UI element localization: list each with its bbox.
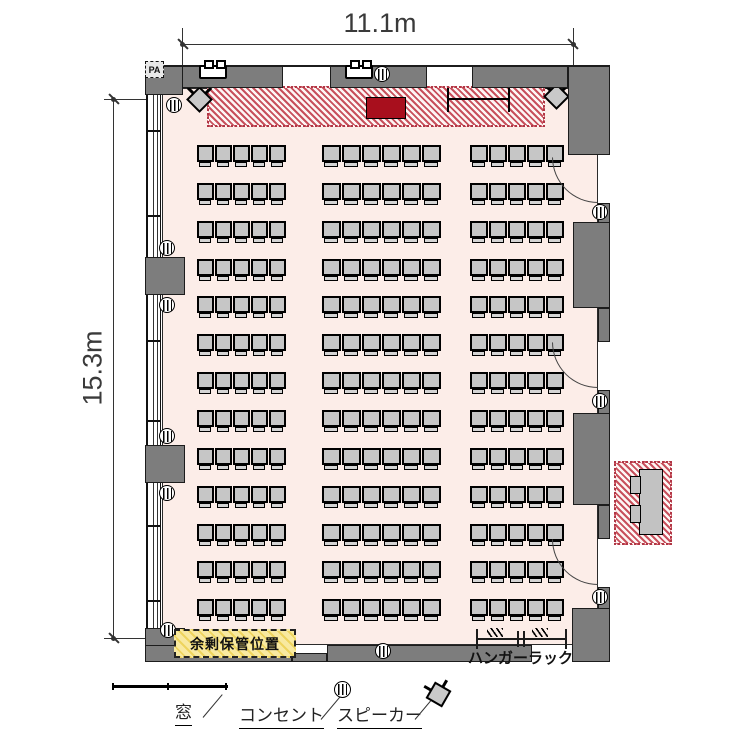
- chair: [422, 296, 441, 313]
- chair: [546, 221, 564, 238]
- chair: [470, 259, 488, 276]
- chair: [527, 259, 545, 276]
- chair: [322, 259, 341, 276]
- chair: [342, 561, 361, 578]
- chair: [215, 486, 232, 503]
- chair: [197, 259, 214, 276]
- chair-row-block: [197, 410, 286, 427]
- chair-row-block: [470, 410, 564, 427]
- chair: [342, 372, 361, 389]
- chair-row-block: [470, 259, 564, 276]
- chair: [342, 524, 361, 541]
- chair: [233, 448, 250, 465]
- chair-row-block: [197, 183, 286, 200]
- chair: [342, 259, 361, 276]
- chair-row-block: [322, 599, 441, 616]
- chair: [508, 410, 526, 427]
- chair-row-block: [197, 145, 286, 162]
- chair: [489, 334, 507, 351]
- wall-segment-bottom-thin: [292, 653, 327, 662]
- chair: [233, 334, 250, 351]
- chair: [422, 599, 441, 616]
- chair: [251, 486, 268, 503]
- chair: [470, 486, 488, 503]
- chair: [215, 561, 232, 578]
- chair: [215, 296, 232, 313]
- chair: [402, 259, 421, 276]
- chair-row-block: [470, 145, 564, 162]
- chair: [508, 221, 526, 238]
- chair: [197, 448, 214, 465]
- chair: [508, 145, 526, 162]
- chair: [269, 524, 286, 541]
- chair: [382, 296, 401, 313]
- chair: [322, 410, 341, 427]
- wall-segment-right: [598, 308, 610, 342]
- chair: [322, 296, 341, 313]
- chair: [342, 221, 361, 238]
- chair: [362, 410, 381, 427]
- chair: [470, 524, 488, 541]
- chair: [489, 259, 507, 276]
- hanger-rack-label: ハンガーラック: [468, 647, 580, 668]
- chair-row-block: [322, 486, 441, 503]
- chair: [402, 599, 421, 616]
- chair: [233, 486, 250, 503]
- chair: [215, 448, 232, 465]
- chair: [251, 145, 268, 162]
- outlet-icon: [159, 297, 175, 313]
- chair: [269, 561, 286, 578]
- chair-row-block: [197, 561, 286, 578]
- outlet-icon: [159, 485, 175, 501]
- wall-segment-right: [598, 505, 610, 539]
- chair: [508, 486, 526, 503]
- chair: [197, 486, 214, 503]
- av-equipment-icon: [345, 65, 373, 79]
- outlet-icon: [159, 428, 175, 444]
- chair: [508, 334, 526, 351]
- chair: [382, 448, 401, 465]
- chair: [489, 183, 507, 200]
- chair: [322, 486, 341, 503]
- chair: [422, 448, 441, 465]
- chair: [527, 410, 545, 427]
- chair: [527, 296, 545, 313]
- chair: [422, 524, 441, 541]
- hanger-rack-end: [476, 629, 478, 649]
- chair: [470, 372, 488, 389]
- external-desk: [639, 469, 663, 535]
- chair: [382, 183, 401, 200]
- chair: [422, 183, 441, 200]
- chair: [402, 221, 421, 238]
- hanger-rack-end: [565, 629, 567, 649]
- chair: [546, 599, 564, 616]
- chair: [470, 296, 488, 313]
- chair: [342, 145, 361, 162]
- chair: [197, 296, 214, 313]
- chair: [527, 183, 545, 200]
- chair: [233, 296, 250, 313]
- chair: [362, 145, 381, 162]
- chair: [402, 183, 421, 200]
- chair: [322, 221, 341, 238]
- seating-area: [0, 0, 750, 750]
- chair: [527, 372, 545, 389]
- chair: [546, 448, 564, 465]
- chair: [470, 448, 488, 465]
- chair: [508, 183, 526, 200]
- wall-pillar-left: [145, 445, 185, 483]
- window-mullion: [146, 215, 161, 217]
- outlet-icon: [374, 66, 390, 82]
- chair: [382, 334, 401, 351]
- chair-row-block: [197, 448, 286, 465]
- chair: [322, 524, 341, 541]
- corner-pillar-top-right: [568, 66, 610, 155]
- chair: [342, 183, 361, 200]
- legend-window-symbol: [113, 685, 228, 688]
- chair: [215, 599, 232, 616]
- chair: [269, 334, 286, 351]
- chair: [251, 524, 268, 541]
- chair-row-block: [322, 372, 441, 389]
- legend-speaker-label: スピーカー: [337, 701, 422, 729]
- chair: [197, 372, 214, 389]
- hanger-rack-hangers: [532, 628, 548, 637]
- legend-window-tick: [112, 683, 114, 690]
- chair: [251, 372, 268, 389]
- chair: [362, 599, 381, 616]
- chair: [402, 334, 421, 351]
- chair: [342, 410, 361, 427]
- chair: [422, 410, 441, 427]
- chair: [251, 221, 268, 238]
- chair: [233, 561, 250, 578]
- chair: [422, 145, 441, 162]
- chair: [402, 448, 421, 465]
- chair-row-block: [470, 561, 564, 578]
- chair: [233, 221, 250, 238]
- chair: [197, 561, 214, 578]
- chair: [508, 448, 526, 465]
- chair: [489, 410, 507, 427]
- chair: [215, 221, 232, 238]
- chair: [251, 561, 268, 578]
- chair: [251, 334, 268, 351]
- window-pane: [153, 95, 158, 629]
- chair: [342, 296, 361, 313]
- chair: [470, 334, 488, 351]
- chair: [362, 372, 381, 389]
- chair: [269, 221, 286, 238]
- chair: [322, 599, 341, 616]
- window-mullion: [146, 600, 161, 602]
- chair: [489, 221, 507, 238]
- chair: [546, 296, 564, 313]
- chair: [382, 410, 401, 427]
- chair-row-block: [470, 183, 564, 200]
- chair: [215, 334, 232, 351]
- chair: [269, 296, 286, 313]
- chair: [197, 334, 214, 351]
- chair: [382, 524, 401, 541]
- chair: [362, 183, 381, 200]
- chair: [382, 259, 401, 276]
- wall-segment-top: [472, 66, 568, 88]
- chair: [402, 410, 421, 427]
- chair: [489, 145, 507, 162]
- chair-row-block: [470, 486, 564, 503]
- chair-row-block: [470, 334, 564, 351]
- chair: [470, 410, 488, 427]
- chair: [527, 334, 545, 351]
- chair: [489, 486, 507, 503]
- chair: [527, 486, 545, 503]
- chair: [508, 296, 526, 313]
- chair: [215, 410, 232, 427]
- chair: [342, 599, 361, 616]
- chair: [197, 410, 214, 427]
- outlet-icon: [592, 204, 608, 220]
- chair: [362, 561, 381, 578]
- chair: [489, 599, 507, 616]
- chair: [402, 145, 421, 162]
- chair: [215, 183, 232, 200]
- pa-box: PA: [145, 61, 164, 78]
- chair: [322, 145, 341, 162]
- chair-row-block: [322, 259, 441, 276]
- outlet-icon: [375, 643, 391, 659]
- chair-row-block: [470, 599, 564, 616]
- chair: [422, 372, 441, 389]
- window-wall: [146, 95, 161, 629]
- chair: [269, 372, 286, 389]
- chair: [342, 448, 361, 465]
- chair: [489, 372, 507, 389]
- chair: [269, 145, 286, 162]
- chair: [197, 221, 214, 238]
- floor-plan: 11.1m 15.3m PA: [0, 0, 750, 750]
- chair-row-block: [322, 448, 441, 465]
- chair: [251, 183, 268, 200]
- chair: [197, 524, 214, 541]
- chair: [322, 334, 341, 351]
- chair: [489, 296, 507, 313]
- chair: [342, 334, 361, 351]
- chair: [342, 486, 361, 503]
- chair: [362, 486, 381, 503]
- chair: [402, 524, 421, 541]
- chair: [422, 561, 441, 578]
- chair: [489, 561, 507, 578]
- chair-row-block: [197, 599, 286, 616]
- chair: [470, 183, 488, 200]
- chair: [382, 221, 401, 238]
- chair: [197, 145, 214, 162]
- chair: [527, 599, 545, 616]
- chair: [269, 259, 286, 276]
- chair: [527, 221, 545, 238]
- chair: [546, 372, 564, 389]
- chair: [362, 334, 381, 351]
- chair: [489, 448, 507, 465]
- chair: [470, 561, 488, 578]
- chair-row-block: [197, 334, 286, 351]
- chair-row-block: [197, 221, 286, 238]
- surplus-storage-label: 余剰保管位置: [174, 629, 296, 658]
- chair-row-block: [197, 296, 286, 313]
- chair: [233, 410, 250, 427]
- chair: [322, 448, 341, 465]
- chair-row-block: [470, 524, 564, 541]
- chair: [215, 145, 232, 162]
- av-equipment-icon: [199, 65, 227, 79]
- outlet-icon: [334, 681, 351, 698]
- chair-row-block: [322, 410, 441, 427]
- chair: [546, 486, 564, 503]
- wall-pillar-left: [145, 257, 185, 295]
- hanger-rack-post: [517, 631, 519, 647]
- chair: [233, 259, 250, 276]
- chair: [233, 599, 250, 616]
- chair: [362, 259, 381, 276]
- chair: [322, 183, 341, 200]
- chair: [362, 296, 381, 313]
- chair: [508, 524, 526, 541]
- chair: [269, 448, 286, 465]
- legend-outlet-label: コンセント: [239, 701, 324, 729]
- chair: [233, 145, 250, 162]
- window-mullion: [146, 340, 161, 342]
- hanger-rack-post: [523, 631, 525, 647]
- chair-row-block: [322, 221, 441, 238]
- chair: [508, 372, 526, 389]
- chair: [269, 486, 286, 503]
- chair: [402, 561, 421, 578]
- chair-row-block: [197, 372, 286, 389]
- legend-window-label: 窓: [175, 698, 192, 726]
- chair: [233, 372, 250, 389]
- chair-row-block: [470, 221, 564, 238]
- chair-row-block: [322, 183, 441, 200]
- chair: [382, 145, 401, 162]
- chair: [527, 561, 545, 578]
- chair: [269, 410, 286, 427]
- chair: [251, 448, 268, 465]
- chair-row-block: [322, 561, 441, 578]
- wall-pillar-right: [573, 222, 610, 308]
- external-desk-chair: [630, 476, 641, 494]
- chair: [251, 259, 268, 276]
- chair: [527, 524, 545, 541]
- hanger-rack-bar: [477, 638, 567, 640]
- chair: [402, 296, 421, 313]
- chair: [215, 259, 232, 276]
- outlet-icon: [166, 97, 182, 113]
- chair: [382, 372, 401, 389]
- window-mullion: [146, 130, 161, 132]
- chair: [489, 524, 507, 541]
- chair: [362, 448, 381, 465]
- external-desk-chair: [630, 505, 641, 523]
- chair-row-block: [197, 486, 286, 503]
- chair: [382, 561, 401, 578]
- chair: [422, 221, 441, 238]
- chair: [470, 145, 488, 162]
- chair: [362, 524, 381, 541]
- outlet-icon: [592, 589, 608, 605]
- window-mullion: [146, 420, 161, 422]
- chair: [546, 410, 564, 427]
- window-mullion: [146, 525, 161, 527]
- chair: [251, 410, 268, 427]
- chair: [422, 486, 441, 503]
- chair: [215, 372, 232, 389]
- chair-row-block: [322, 145, 441, 162]
- legend-window-tick: [225, 683, 227, 690]
- legend-window-tick: [167, 683, 169, 690]
- chair: [470, 221, 488, 238]
- chair: [422, 334, 441, 351]
- outlet-icon: [159, 240, 175, 256]
- chair: [269, 599, 286, 616]
- chair: [215, 524, 232, 541]
- chair: [362, 221, 381, 238]
- chair: [402, 486, 421, 503]
- chair-row-block: [470, 448, 564, 465]
- chair-row-block: [322, 524, 441, 541]
- chair: [382, 486, 401, 503]
- chair: [233, 183, 250, 200]
- chair: [269, 183, 286, 200]
- chair: [322, 372, 341, 389]
- chair-row-block: [322, 334, 441, 351]
- wall-pillar-right: [573, 413, 610, 505]
- chair: [470, 599, 488, 616]
- chair-row-block: [197, 524, 286, 541]
- chair-row-block: [470, 372, 564, 389]
- hanger-rack-hangers: [487, 628, 503, 637]
- chair: [197, 599, 214, 616]
- chair: [508, 259, 526, 276]
- chair: [527, 145, 545, 162]
- chair: [402, 372, 421, 389]
- chair: [197, 183, 214, 200]
- chair: [508, 561, 526, 578]
- chair: [251, 296, 268, 313]
- chair: [382, 599, 401, 616]
- chair: [422, 259, 441, 276]
- chair: [322, 561, 341, 578]
- chair: [233, 524, 250, 541]
- chair: [251, 599, 268, 616]
- chair: [508, 599, 526, 616]
- chair: [527, 448, 545, 465]
- chair: [546, 259, 564, 276]
- chair-row-block: [322, 296, 441, 313]
- chair-row-block: [197, 259, 286, 276]
- chair-row-block: [470, 296, 564, 313]
- outlet-icon: [592, 393, 608, 409]
